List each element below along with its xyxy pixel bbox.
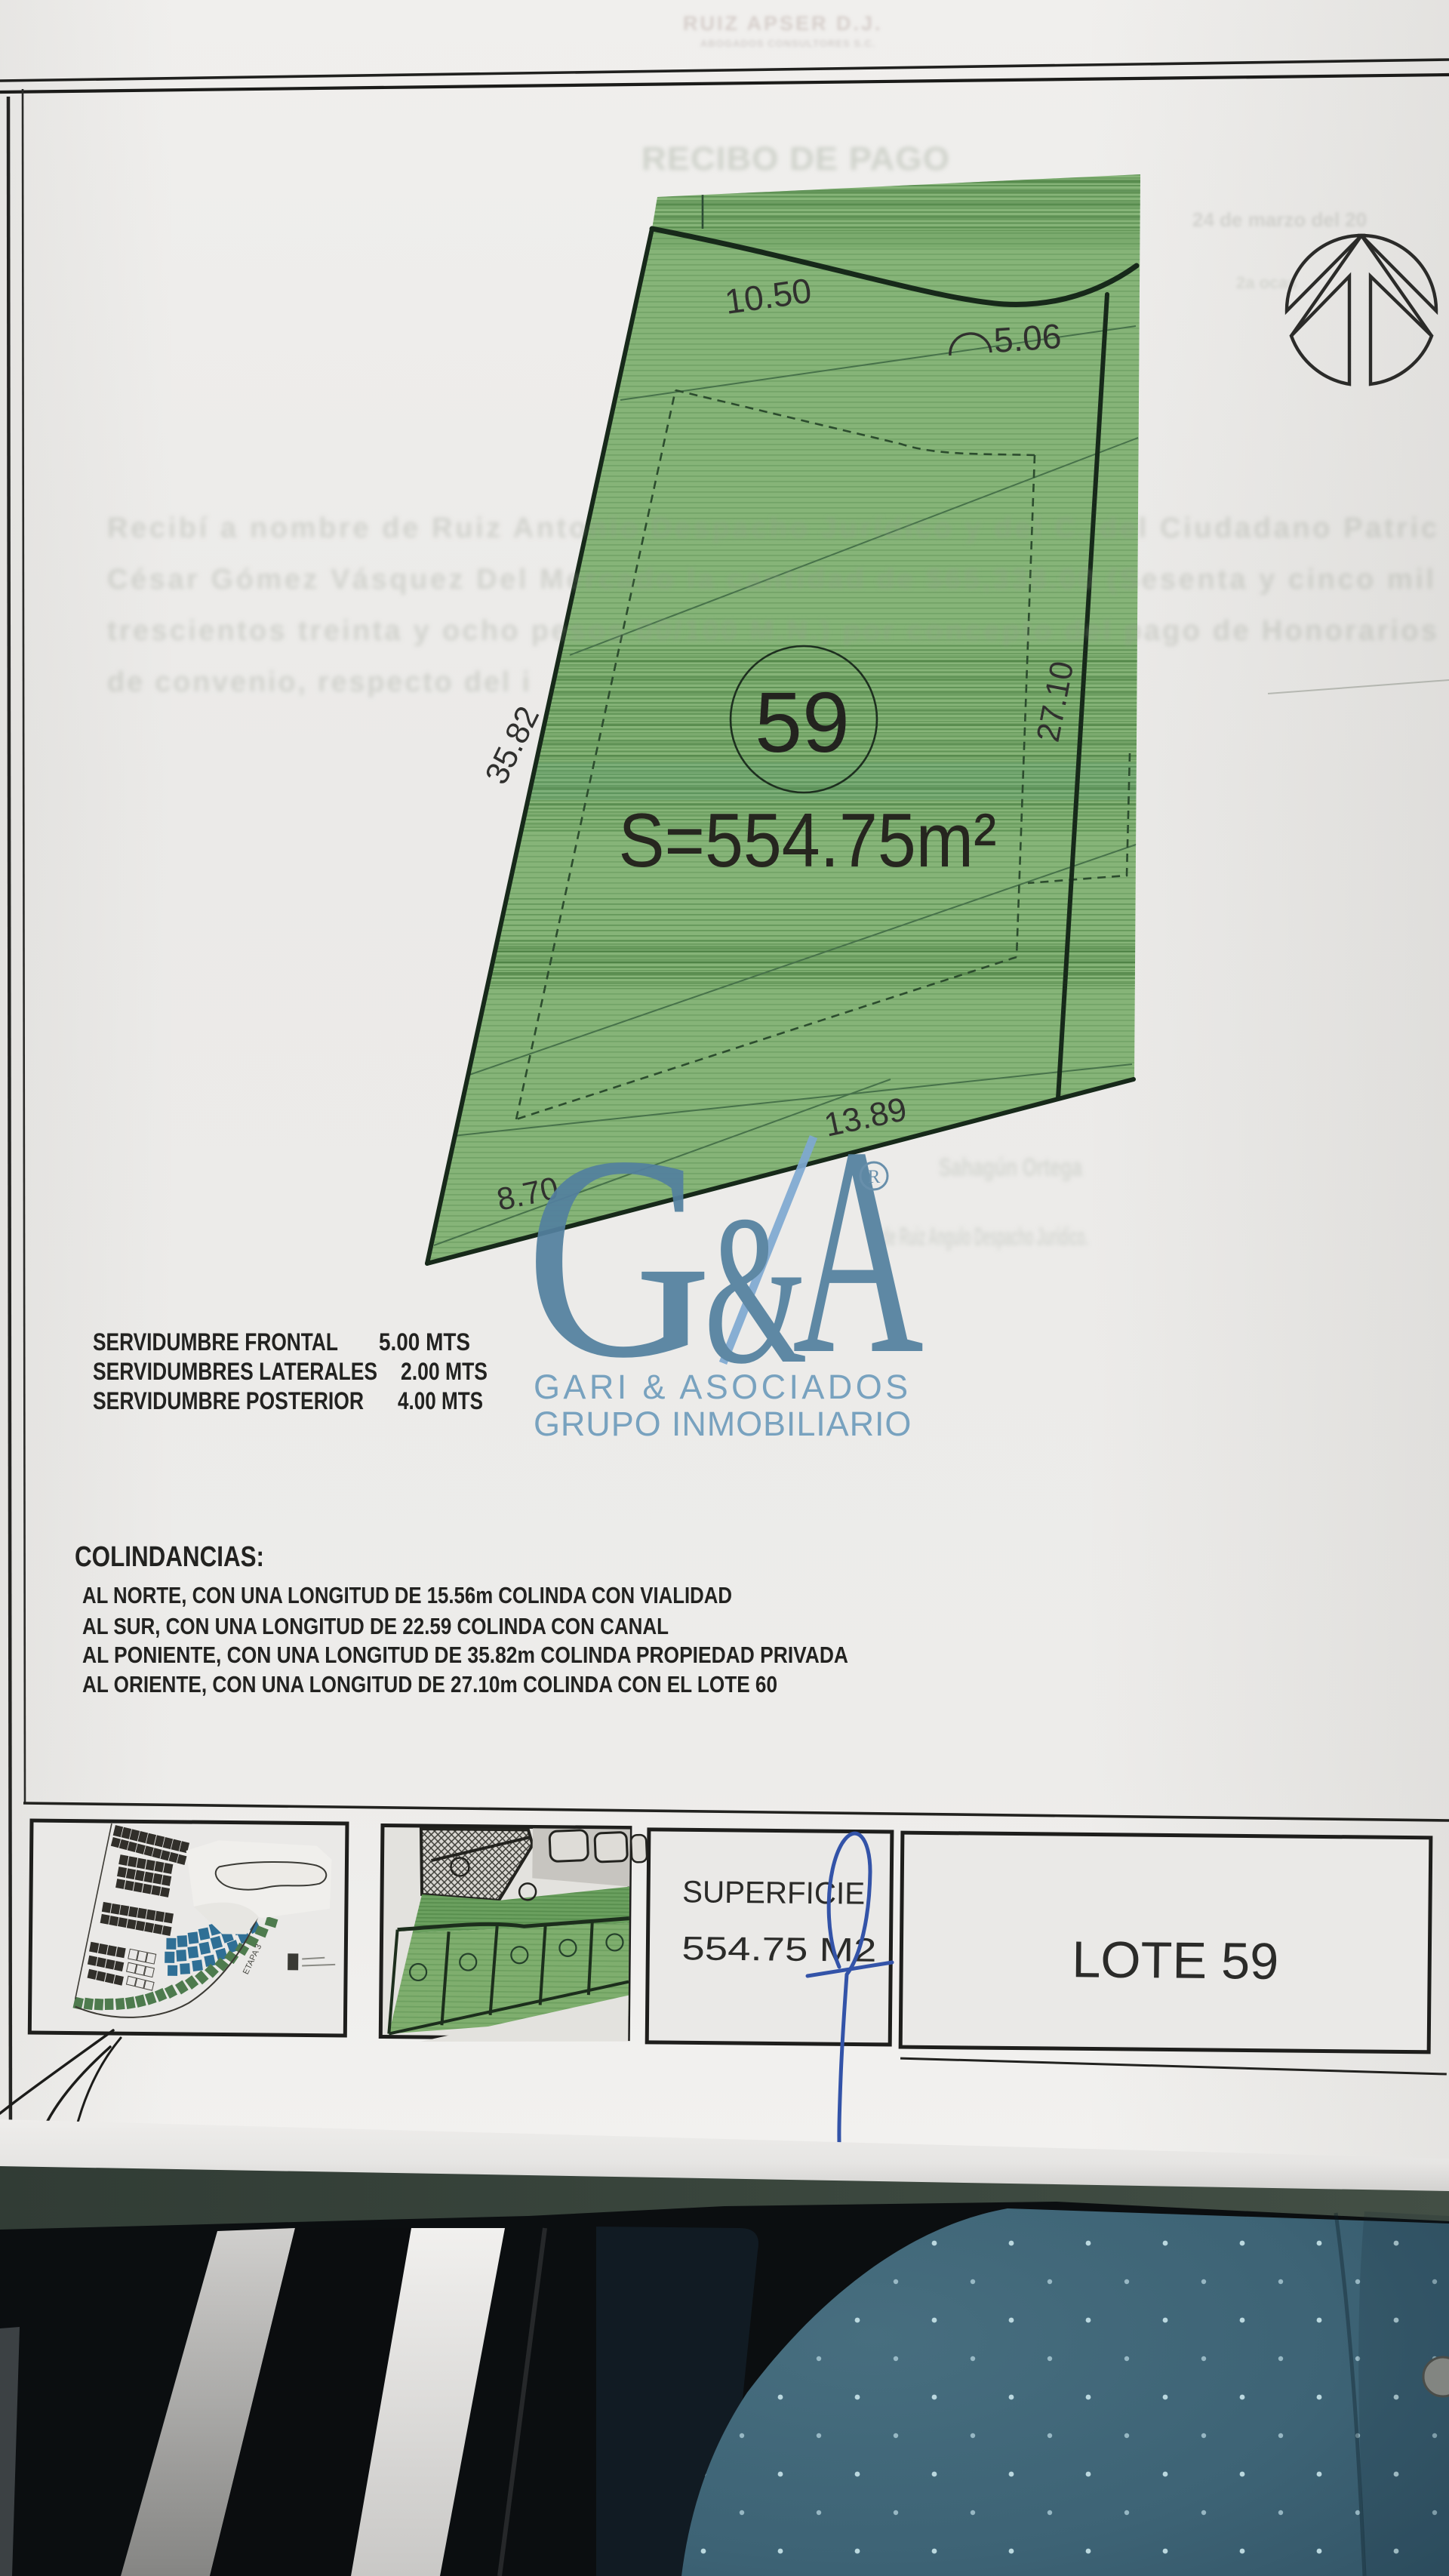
svg-text:A: A: [792, 1086, 924, 1416]
svg-text:5.06: 5.06: [992, 316, 1063, 360]
svg-text:2a ocas: 2a ocas: [1236, 273, 1297, 292]
svg-text:LOTE 59: LOTE 59: [1072, 1931, 1279, 1990]
svg-text:59: 59: [755, 675, 850, 770]
svg-text:5.00 MTS: 5.00 MTS: [379, 1328, 470, 1356]
svg-text:4.00 MTS: 4.00 MTS: [398, 1387, 483, 1414]
svg-text:S=554.75m²: S=554.75m²: [619, 799, 997, 883]
svg-text:ABOGADOS CONSULTORES S.C.: ABOGADOS CONSULTORES S.C.: [700, 38, 876, 49]
svg-text:trescientos treinta y ocho pes: trescientos treinta y ocho pesos 00/100 …: [107, 615, 1437, 647]
svg-text:SERVIDUMBRES LATERALES: SERVIDUMBRES LATERALES: [93, 1358, 377, 1385]
svg-text:RUIZ APSER D.J.: RUIZ APSER D.J.: [683, 12, 883, 35]
svg-text:RECIBO DE PAGO: RECIBO DE PAGO: [641, 140, 950, 177]
svg-text:Recibí a nombre de Ruiz A: Recibí a nombre de Ruiz Antonio Despacho…: [107, 512, 1437, 544]
svg-text:24 de marzo del 20: 24 de marzo del 20: [1192, 208, 1367, 231]
svg-text:AL PONIENTE, CON UNA LONGITUD: AL PONIENTE, CON UNA LONGITUD DE 35.82m …: [82, 1642, 848, 1668]
svg-text:COLINDANCIAS:: COLINDANCIAS:: [75, 1541, 264, 1573]
svg-text:Sahagún Ortega: Sahagún Ortega: [939, 1153, 1083, 1182]
svg-text:AL SUR, CON UNA LONGITUD DE 22: AL SUR, CON UNA LONGITUD DE 22.59 COLIND…: [82, 1613, 669, 1639]
svg-text:César Gómez Vásquez Del Mercad: César Gómez Vásquez Del Mercado la canti…: [107, 564, 1434, 596]
svg-text:R: R: [868, 1167, 881, 1187]
svg-text:AL ORIENTE, CON UNA LONGITUD D: AL ORIENTE, CON UNA LONGITUD DE 27.10m C…: [82, 1671, 777, 1697]
svg-text:554.75 M2: 554.75 M2: [681, 1930, 876, 1968]
svg-text:GARI & ASOCIADOS: GARI & ASOCIADOS: [534, 1368, 912, 1406]
svg-text:2.00 MTS: 2.00 MTS: [401, 1358, 488, 1385]
svg-text:de convenio, respecto del i: de convenio, respecto del i: [107, 666, 530, 698]
svg-text:SERVIDUMBRE FRONTAL: SERVIDUMBRE FRONTAL: [93, 1328, 338, 1356]
svg-text:SERVIDUMBRE POSTERIOR: SERVIDUMBRE POSTERIOR: [93, 1387, 364, 1414]
svg-text:AL NORTE, CON UNA LONGITUD DE: AL NORTE, CON UNA LONGITUD DE 15.56m COL…: [82, 1582, 732, 1608]
svg-text:GRUPO INMOBILIARIO: GRUPO INMOBILIARIO: [534, 1405, 912, 1443]
svg-text:SUPERFICIE: SUPERFICIE: [682, 1874, 865, 1910]
